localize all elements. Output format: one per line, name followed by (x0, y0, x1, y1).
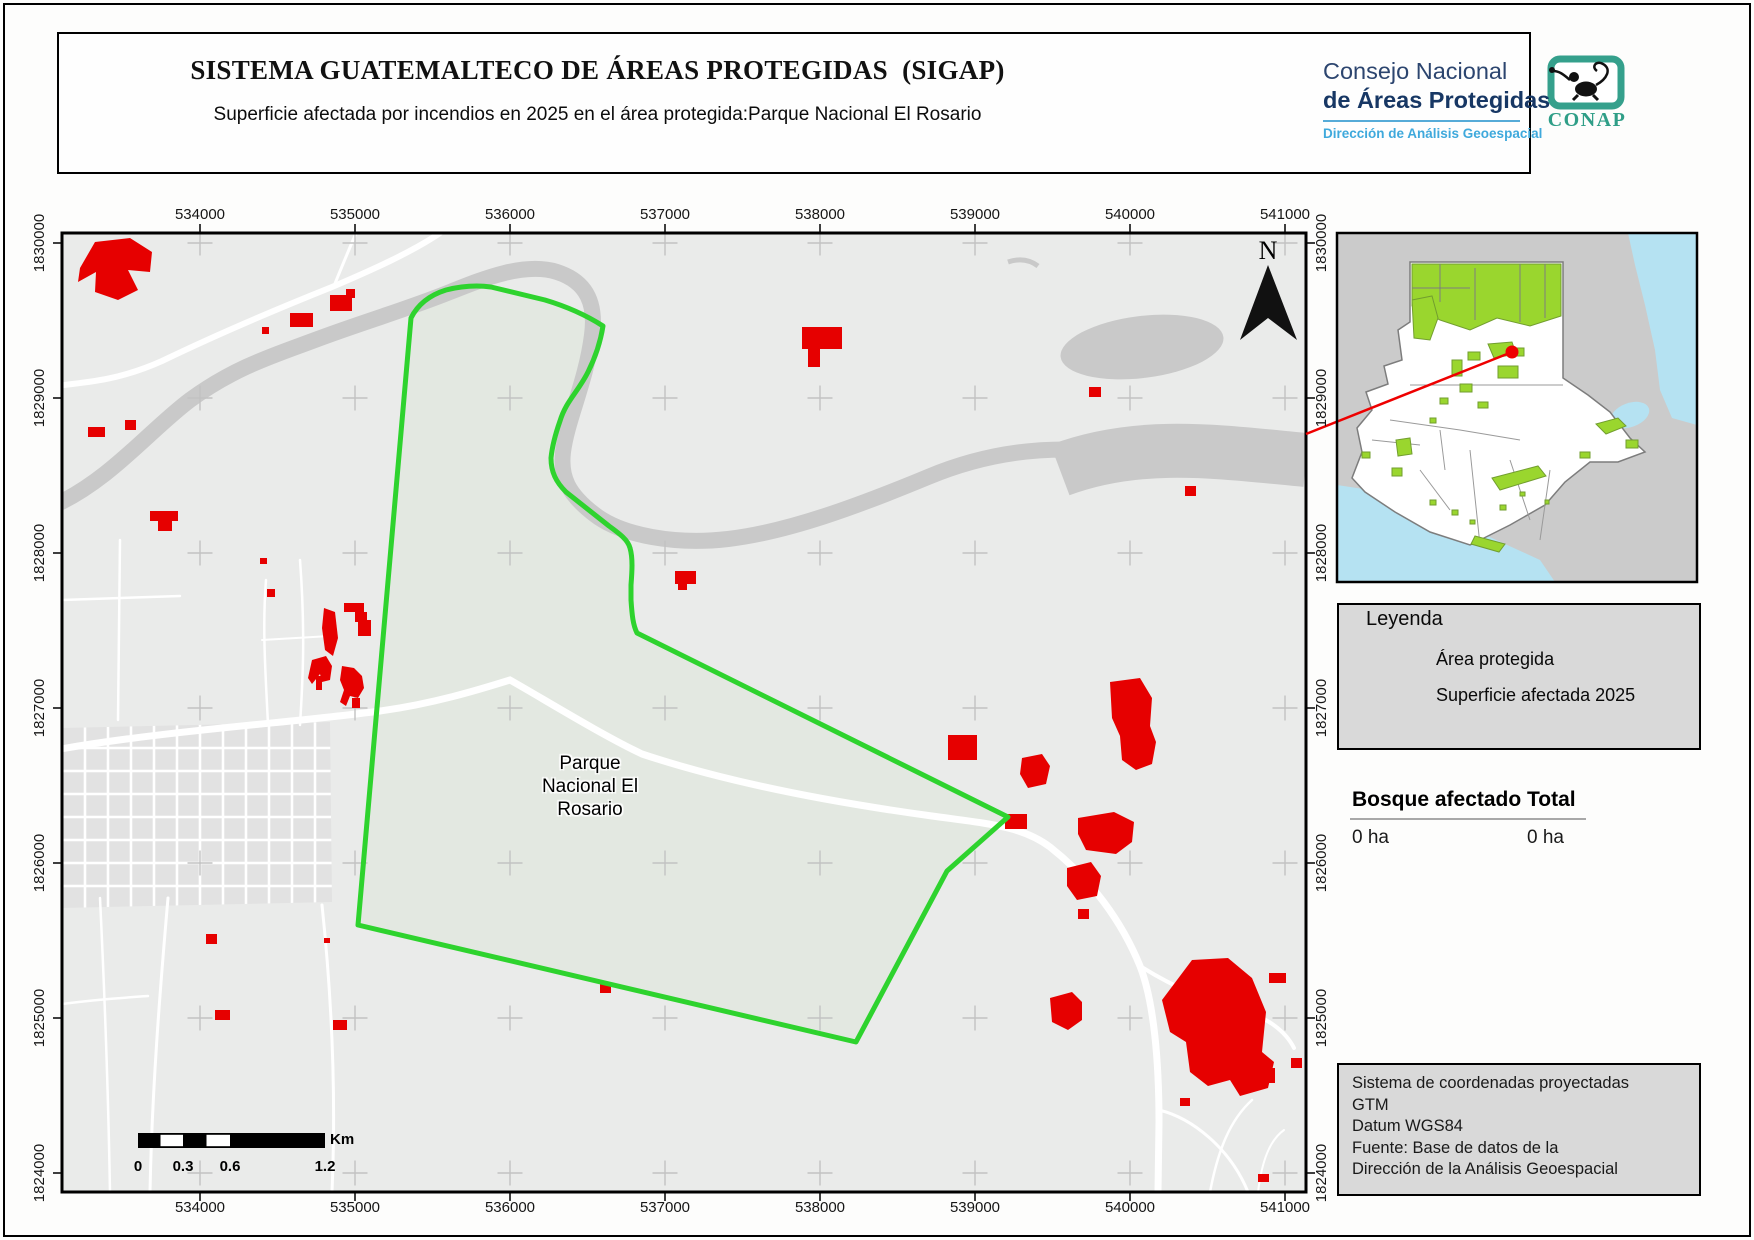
coordinate-system-text: Sistema de coordenadas proyectadas GTM D… (1352, 1073, 1687, 1181)
main-map (55, 233, 1306, 1192)
council-divider (1323, 120, 1520, 122)
x-axis-label-top: 537000 (630, 206, 700, 223)
x-axis-label-top: 539000 (940, 206, 1010, 223)
x-axis-label-top: 540000 (1095, 206, 1165, 223)
north-label: N (1240, 236, 1296, 266)
header-box (57, 32, 1531, 174)
x-axis-label-bottom: 541000 (1250, 1199, 1320, 1216)
scale-bar (138, 1133, 325, 1148)
x-axis-label-bottom: 535000 (320, 1199, 390, 1216)
stats-value-total: 0 ha (1527, 827, 1564, 849)
council-name-line2: de Áreas Protegidas (1323, 87, 1550, 114)
park-name-label: Parque Nacional El Rosario (480, 752, 700, 821)
x-axis-label-top: 535000 (320, 206, 390, 223)
x-axis-label-bottom: 537000 (630, 1199, 700, 1216)
council-name-line1: Consejo Nacional (1323, 58, 1507, 85)
scalebar-tick-label: 0.3 (161, 1158, 205, 1175)
page-subtitle: Superficie afectada por incendios en 202… (105, 104, 1090, 126)
scalebar-tick-label: 1.2 (303, 1158, 347, 1175)
page-title: SISTEMA GUATEMALTECO DE ÁREAS PROTEGIDAS… (105, 55, 1090, 86)
conap-logo (1549, 59, 1621, 106)
y-axis-label-left: 1829000 (32, 363, 48, 433)
x-axis-label-top: 538000 (785, 206, 855, 223)
conap-wordmark: CONAP (1546, 109, 1628, 132)
scalebar-unit-label: Km (330, 1131, 354, 1148)
y-axis-label-left: 1824000 (32, 1138, 48, 1208)
y-axis-label-right: 1826000 (1314, 828, 1330, 898)
y-axis-label-right: 1829000 (1314, 363, 1330, 433)
x-axis-label-bottom: 540000 (1095, 1199, 1165, 1216)
scalebar-tick-label: 0.6 (208, 1158, 252, 1175)
x-axis-label-bottom: 538000 (785, 1199, 855, 1216)
x-axis-label-bottom: 539000 (940, 1199, 1010, 1216)
stats-header-bosque: Bosque afectado (1352, 788, 1521, 812)
y-axis-label-left: 1825000 (32, 983, 48, 1053)
stats-value-bosque: 0 ha (1352, 827, 1389, 849)
legend-item-superficie-afectada: Superficie afectada 2025 (1436, 685, 1635, 706)
x-axis-label-top: 534000 (165, 206, 235, 223)
stats-header-total: Total (1527, 788, 1576, 812)
inset-map (1306, 233, 1697, 582)
locator-dot (1506, 346, 1519, 359)
y-axis-label-left: 1828000 (32, 518, 48, 588)
y-axis-label-left: 1830000 (32, 208, 48, 278)
council-direction-label: Dirección de Análisis Geoespacial (1323, 126, 1542, 141)
legend-title: Leyenda (1366, 608, 1443, 631)
map-document: GOBIERNO DE LA REPÚBLICA GUATEMALA (0, 0, 1754, 1240)
x-axis-label-top: 541000 (1250, 206, 1320, 223)
x-axis-label-bottom: 536000 (475, 1199, 545, 1216)
x-axis-label-top: 536000 (475, 206, 545, 223)
y-axis-label-right: 1828000 (1314, 518, 1330, 588)
y-axis-label-right: 1830000 (1314, 208, 1330, 278)
stats-divider (1350, 818, 1586, 820)
y-axis-label-right: 1824000 (1314, 1138, 1330, 1208)
legend-item-area-protegida: Área protegida (1436, 649, 1554, 670)
scalebar-tick-label: 0 (116, 1158, 160, 1175)
y-axis-label-left: 1826000 (32, 828, 48, 898)
y-axis-label-right: 1825000 (1314, 983, 1330, 1053)
y-axis-label-right: 1827000 (1314, 673, 1330, 743)
x-axis-label-bottom: 534000 (165, 1199, 235, 1216)
y-axis-label-left: 1827000 (32, 673, 48, 743)
